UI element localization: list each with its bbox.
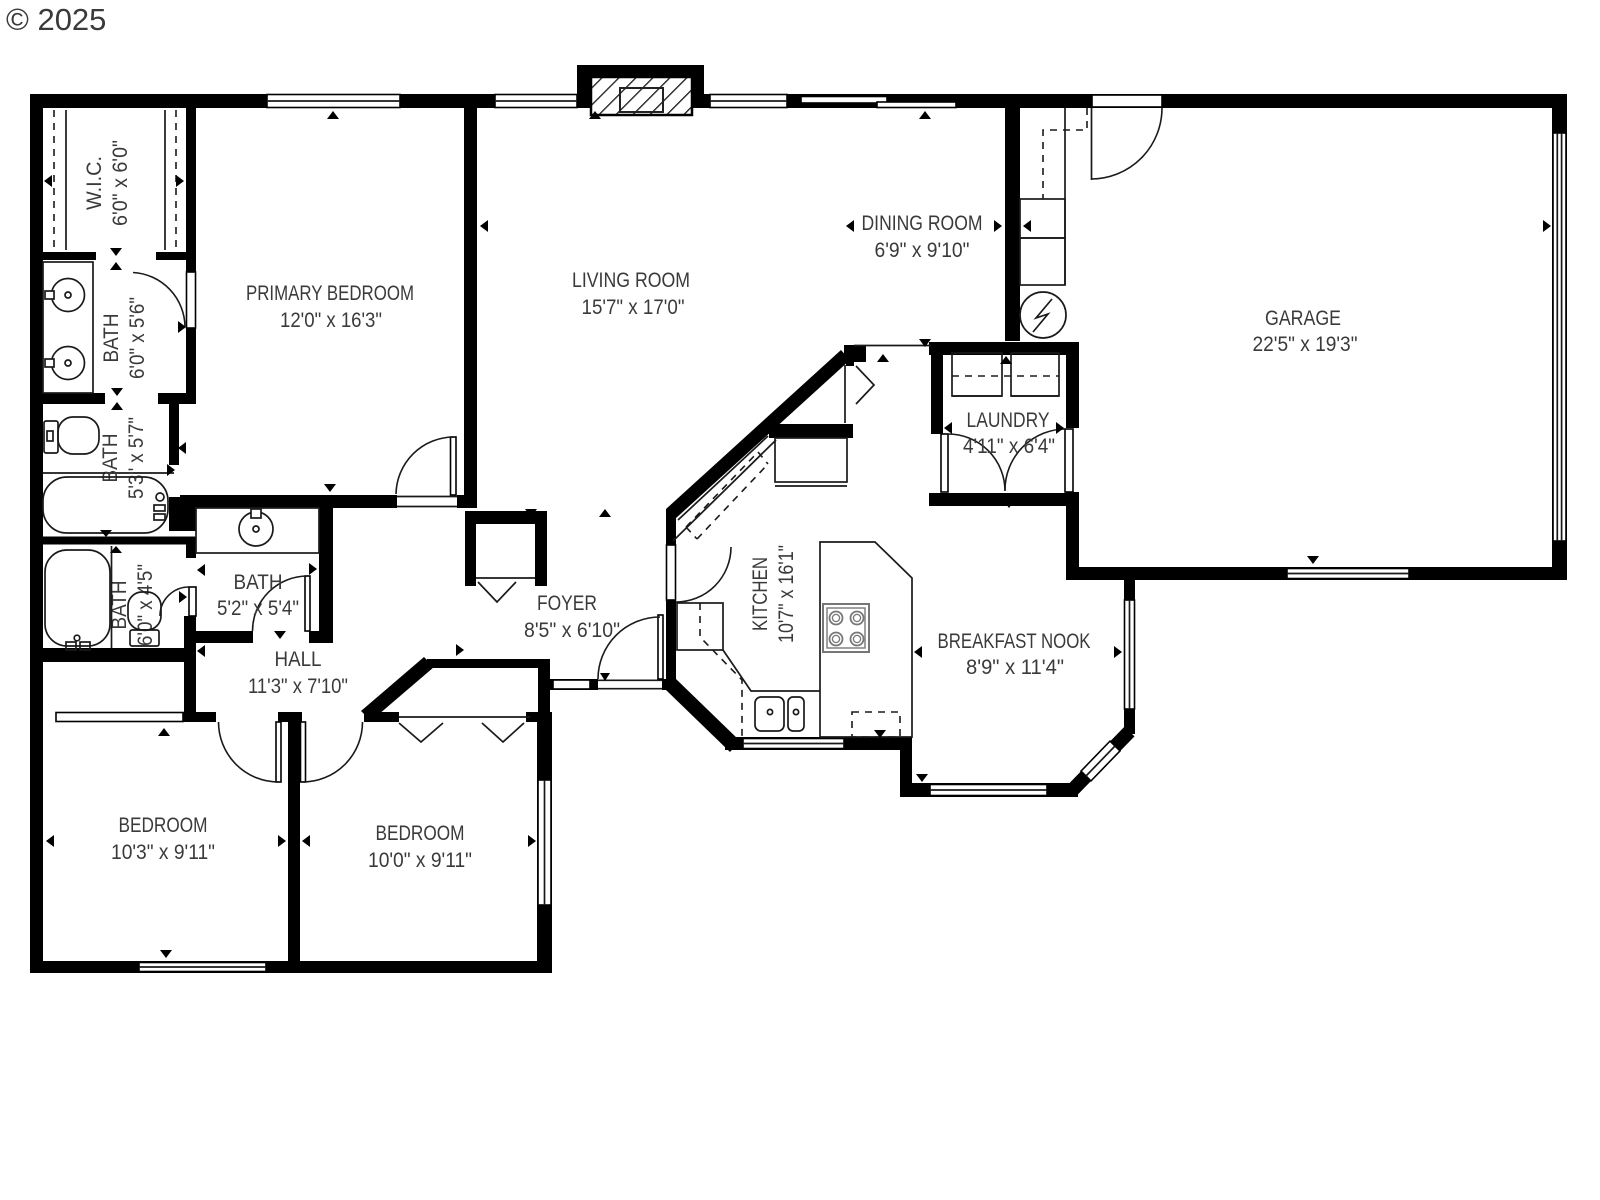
svg-text:5'2" x 5'4": 5'2" x 5'4" (217, 597, 299, 620)
svg-text:10'7" x 16'1": 10'7" x 16'1" (775, 545, 798, 643)
svg-text:LAUNDRY: LAUNDRY (967, 409, 1050, 432)
svg-text:BEDROOM: BEDROOM (376, 822, 465, 845)
svg-text:4'11" x 6'4": 4'11" x 6'4" (963, 435, 1055, 458)
svg-text:LIVING ROOM: LIVING ROOM (572, 269, 690, 292)
svg-text:BREAKFAST NOOK: BREAKFAST NOOK (938, 630, 1091, 653)
svg-text:BEDROOM: BEDROOM (119, 814, 208, 837)
svg-text:W.I.C.: W.I.C. (83, 156, 106, 210)
svg-text:6'9" x 9'10": 6'9" x 9'10" (875, 239, 970, 262)
svg-text:HALL: HALL (275, 648, 322, 671)
svg-text:8'5" x 6'10": 8'5" x 6'10" (524, 619, 620, 642)
svg-text:BATH: BATH (234, 571, 283, 594)
svg-text:15'7" x 17'0": 15'7" x 17'0" (582, 296, 685, 319)
svg-text:8'9" x 11'4": 8'9" x 11'4" (966, 656, 1064, 679)
svg-text:12'0" x 16'3": 12'0" x 16'3" (280, 309, 382, 332)
svg-text:BATH: BATH (100, 314, 123, 363)
svg-text:6'0" x 4'5": 6'0" x 4'5" (134, 564, 157, 646)
svg-text:GARAGE: GARAGE (1265, 307, 1341, 330)
svg-text:© 2025: © 2025 (6, 2, 106, 37)
svg-text:DINING ROOM: DINING ROOM (862, 212, 983, 235)
svg-text:KITCHEN: KITCHEN (749, 557, 772, 631)
svg-text:10'3" x 9'11": 10'3" x 9'11" (111, 841, 215, 864)
svg-text:6'0" x 6'0": 6'0" x 6'0" (109, 140, 132, 226)
svg-text:6'0" x 5'6": 6'0" x 5'6" (126, 297, 149, 379)
svg-text:PRIMARY BEDROOM: PRIMARY BEDROOM (246, 282, 414, 305)
svg-text:5'3" x 5'7": 5'3" x 5'7" (125, 417, 148, 499)
svg-text:BATH: BATH (99, 434, 122, 483)
svg-text:11'3" x 7'10": 11'3" x 7'10" (248, 675, 348, 698)
svg-text:FOYER: FOYER (537, 592, 597, 615)
svg-text:22'5" x 19'3": 22'5" x 19'3" (1253, 333, 1358, 356)
svg-text:10'0" x 9'11": 10'0" x 9'11" (368, 849, 472, 872)
